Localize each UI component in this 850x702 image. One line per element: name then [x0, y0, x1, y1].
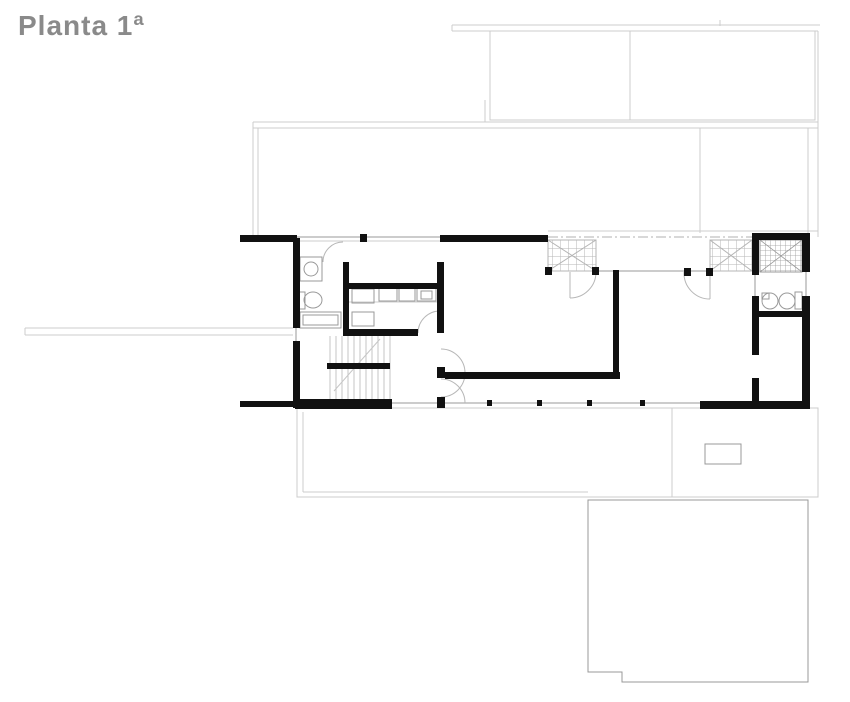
wall-segment	[802, 296, 810, 408]
screenshot-root: Planta 1ª	[0, 0, 850, 702]
wall-segment	[345, 283, 440, 289]
wall-segment	[802, 233, 810, 272]
wall-post	[360, 234, 367, 242]
floor-plan-drawing	[0, 0, 850, 702]
wall-segment	[343, 329, 418, 336]
column-dot	[537, 400, 542, 406]
terrace-outline	[297, 408, 818, 497]
wall-post	[684, 268, 691, 276]
appliance	[352, 312, 374, 326]
door-swing	[323, 242, 343, 262]
door-swing	[684, 272, 710, 299]
wall-segment	[343, 262, 349, 335]
column-dot	[640, 400, 645, 406]
column-dot	[587, 400, 592, 406]
skylight-grid	[710, 240, 752, 271]
wall-segment	[437, 262, 444, 333]
skylight-grid-dense	[760, 240, 802, 272]
counter-unit	[399, 288, 415, 301]
sink-fixture	[762, 293, 778, 309]
counter-unit	[379, 288, 397, 301]
wall-segment	[327, 363, 390, 369]
wall-segment	[700, 401, 810, 409]
kitchen-counter	[349, 288, 437, 326]
wall-segment	[752, 233, 810, 240]
wall-segment	[752, 311, 810, 317]
bathroom-right-fixtures	[762, 292, 802, 309]
wall-segment	[240, 401, 295, 407]
wall-segment	[295, 399, 392, 409]
door-swing	[418, 311, 440, 333]
wall-segment	[440, 235, 548, 242]
wall-segment	[752, 233, 759, 275]
wall-post	[706, 268, 713, 276]
wall-segment	[293, 238, 300, 328]
bathtub-fixture	[300, 312, 341, 328]
wall-segment	[752, 296, 759, 355]
skylight-grid	[548, 240, 596, 271]
bathroom-left-fixtures	[299, 257, 341, 328]
upper-level-outline	[253, 20, 820, 238]
wall-segment	[293, 341, 300, 408]
pool-outline	[588, 500, 808, 682]
wall-post	[437, 397, 445, 408]
appliance	[352, 289, 374, 303]
column-dot	[487, 400, 492, 406]
wall-segment	[613, 270, 619, 379]
wall-segment	[445, 372, 620, 379]
skylight-grating-panels	[548, 240, 802, 272]
footbridge	[25, 328, 293, 335]
wall-post	[592, 267, 599, 275]
sink-fixture	[300, 257, 322, 281]
wall-segment	[240, 235, 297, 242]
planter	[705, 444, 741, 464]
toilet-fixture	[779, 292, 802, 309]
toilet-fixture	[299, 292, 322, 309]
door-swing	[570, 272, 596, 298]
wall-post	[437, 367, 445, 378]
wall-post	[545, 267, 552, 275]
